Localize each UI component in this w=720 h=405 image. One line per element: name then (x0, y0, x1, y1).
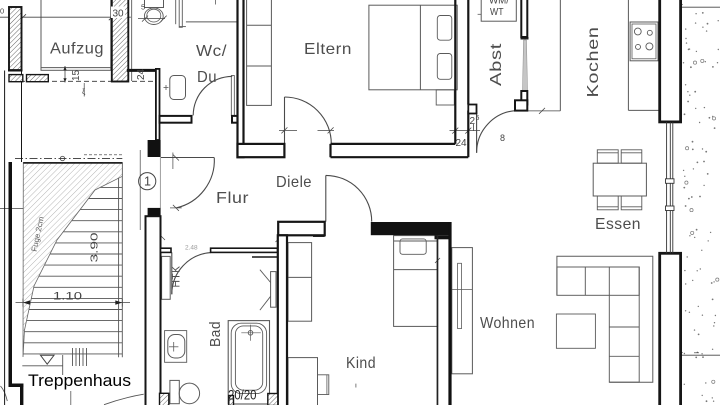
svg-text:HTK: HTK (171, 265, 183, 287)
svg-text:WT: WT (490, 6, 504, 18)
svg-text:Kochen: Kochen (585, 27, 602, 98)
svg-text:30: 30 (113, 9, 125, 20)
svg-text:1.10: 1.10 (53, 291, 82, 303)
svg-text:20/20: 20/20 (228, 387, 257, 403)
svg-text:5: 5 (141, 3, 145, 12)
svg-text:Abst: Abst (488, 43, 505, 86)
svg-text:15: 15 (71, 69, 82, 81)
svg-text:24: 24 (136, 68, 147, 80)
svg-text:Essen: Essen (595, 216, 641, 233)
svg-text:Bad: Bad (207, 321, 224, 347)
svg-text:8: 8 (500, 133, 505, 143)
svg-text:1: 1 (144, 175, 151, 189)
svg-text:Wc/: Wc/ (196, 43, 227, 60)
svg-text:3.90: 3.90 (89, 232, 101, 262)
svg-text:Flur: Flur (216, 190, 249, 207)
svg-text:Du: Du (197, 69, 217, 86)
svg-text:Kind: Kind (346, 355, 376, 372)
svg-text:WM/: WM/ (489, 0, 509, 7)
svg-text:Aufzug: Aufzug (50, 41, 104, 58)
svg-text:Wohnen: Wohnen (480, 315, 535, 332)
svg-text:Diele: Diele (276, 174, 312, 191)
svg-text:Eltern: Eltern (304, 41, 352, 58)
svg-text:0: 0 (0, 7, 4, 16)
svg-text:24: 24 (456, 138, 468, 149)
svg-text:Treppenhaus: Treppenhaus (28, 371, 131, 390)
svg-text:2.48: 2.48 (185, 245, 198, 252)
svg-text:5: 5 (476, 115, 480, 122)
